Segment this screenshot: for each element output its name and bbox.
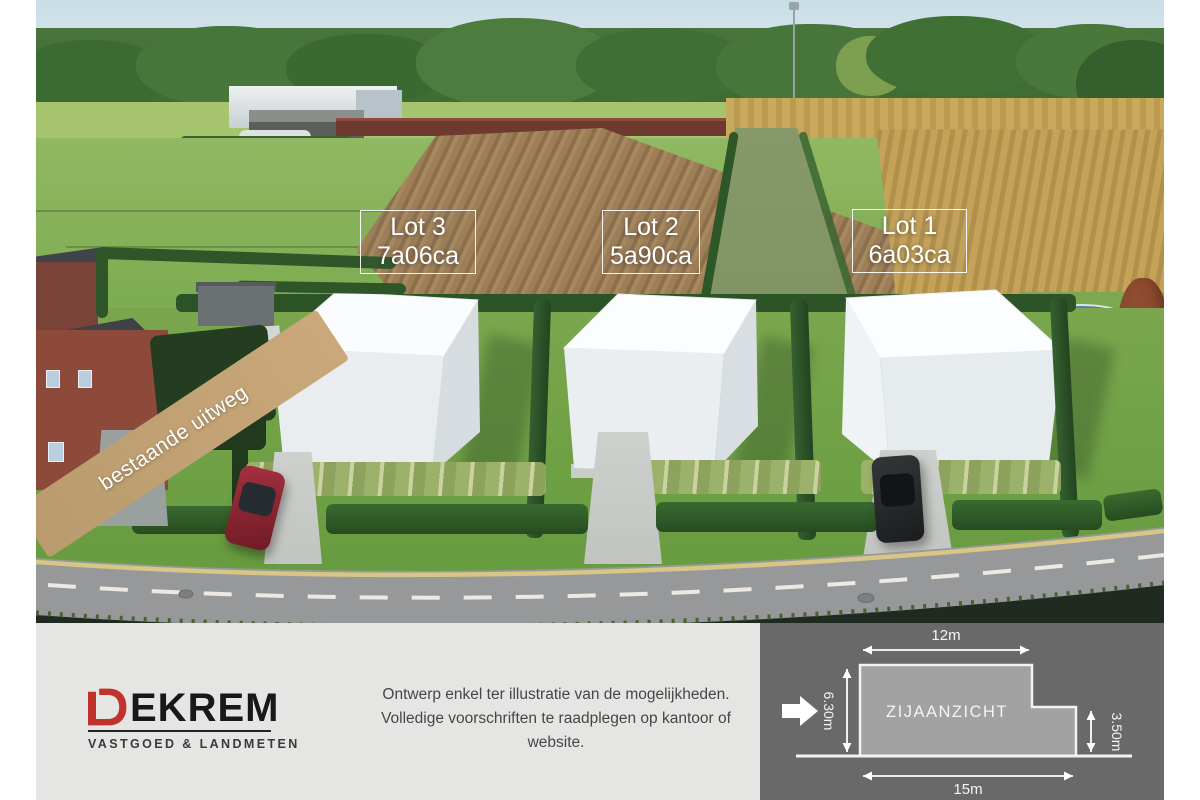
shed <box>198 286 274 326</box>
window <box>46 370 60 388</box>
road <box>36 515 1164 623</box>
telecom-mast-top <box>789 2 799 10</box>
footer: EKREM VASTGOED & LANDMETEN Ontwerp enkel… <box>36 623 1164 800</box>
disclaimer-text: Ontwerp enkel ter illustratie van de mog… <box>336 683 776 755</box>
logo-tagline: VASTGOED & LANDMETEN <box>88 737 300 751</box>
dim-top-label: 12m <box>931 627 960 644</box>
lot-label-3: Lot 3 7a06ca <box>360 210 476 274</box>
brand-logo: EKREM VASTGOED & LANDMETEN <box>88 687 300 751</box>
lot-label-1: Lot 1 6a03ca <box>852 209 967 273</box>
dim-bottom-label: 15m <box>953 781 982 798</box>
logo-rule <box>88 730 271 732</box>
window <box>78 370 92 388</box>
lot-area: 7a06ca <box>361 242 475 271</box>
dim-right-label: 3.50m <box>1109 713 1125 752</box>
logo-wordmark: EKREM <box>88 687 300 727</box>
aerial-photo: bestaande uitweg Lot 3 7a06ca Lot 2 5a90… <box>36 0 1164 623</box>
entry-arrow-icon <box>782 696 818 726</box>
logo-text: EKREM <box>130 689 279 727</box>
lot-name: Lot 1 <box>853 212 966 241</box>
lot-name: Lot 2 <box>603 213 699 242</box>
diagram-title: ZIJAANZICHT <box>886 703 1008 721</box>
building-lot-1 <box>830 284 1070 480</box>
dim-left-label: 6.30m <box>821 692 837 731</box>
building-lot-2 <box>560 290 764 478</box>
side-view-drawing: 12m 15m 6.30m 3.50m ZIJAANZICHT <box>760 623 1164 800</box>
lot-name: Lot 3 <box>361 213 475 242</box>
listing-visual: bestaande uitweg Lot 3 7a06ca Lot 2 5a90… <box>0 0 1200 800</box>
window <box>48 442 64 462</box>
lot-label-2: Lot 2 5a90ca <box>602 210 700 274</box>
garden-hedge <box>96 252 108 318</box>
logo-d-icon <box>88 687 128 727</box>
lot-area: 5a90ca <box>603 242 699 271</box>
disclaimer-line: Volledige voorschriften te raadplegen op… <box>336 707 776 731</box>
telecom-mast-icon <box>793 2 795 98</box>
disclaimer-line: Ontwerp enkel ter illustratie van de mog… <box>336 683 776 707</box>
side-view-diagram: 12m 15m 6.30m 3.50m ZIJAANZICHT <box>760 623 1164 800</box>
disclaimer-line: website. <box>336 731 776 755</box>
neighbour-house <box>36 262 98 332</box>
lot-area: 6a03ca <box>853 241 966 270</box>
black-car-glass <box>879 473 915 507</box>
